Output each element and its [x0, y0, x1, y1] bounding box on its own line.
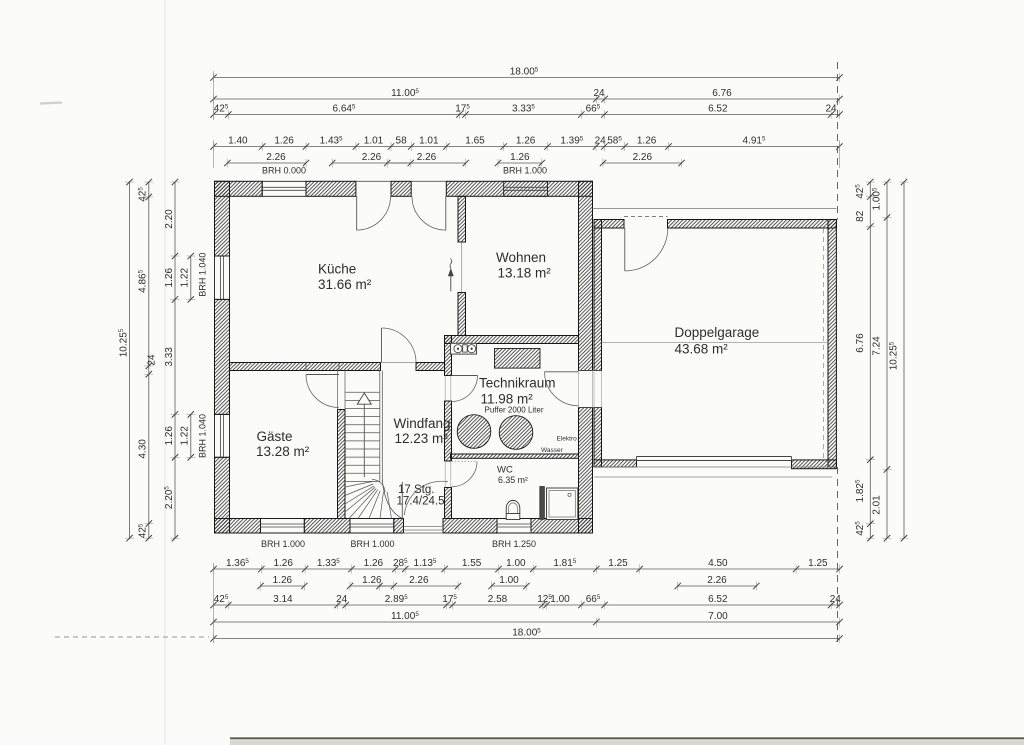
svg-text:Elektro: Elektro — [557, 436, 578, 443]
svg-text:13.28 m²: 13.28 m² — [256, 444, 310, 459]
svg-text:82: 82 — [855, 210, 866, 222]
svg-text:2.26: 2.26 — [707, 575, 727, 586]
svg-text:17.4/24.5: 17.4/24.5 — [397, 496, 445, 508]
svg-text:18.005: 18.005 — [512, 627, 541, 638]
svg-text:1.00: 1.00 — [550, 594, 570, 605]
svg-text:Doppelgarage: Doppelgarage — [675, 325, 760, 340]
svg-text:BRH 1.000: BRH 1.000 — [261, 539, 305, 549]
svg-text:1.26: 1.26 — [273, 575, 293, 586]
svg-text:BRH 1.000: BRH 1.000 — [350, 539, 394, 549]
svg-text:58: 58 — [396, 136, 408, 147]
svg-text:1.26: 1.26 — [364, 558, 384, 569]
svg-text:Gäste: Gäste — [257, 429, 293, 444]
svg-text:Wasser: Wasser — [541, 447, 564, 454]
svg-text:11.005: 11.005 — [391, 88, 419, 99]
svg-text:BRH 1.040: BRH 1.040 — [198, 253, 208, 297]
svg-text:18.005: 18.005 — [510, 66, 539, 77]
svg-text:1.26: 1.26 — [516, 136, 536, 147]
svg-text:11.98 m²: 11.98 m² — [481, 392, 534, 407]
svg-text:1.22: 1.22 — [180, 268, 191, 288]
svg-text:6.52: 6.52 — [708, 594, 728, 605]
svg-text:1.26: 1.26 — [164, 426, 175, 446]
svg-text:Wohnen: Wohnen — [496, 250, 546, 265]
svg-text:1.65: 1.65 — [465, 136, 485, 147]
svg-text:24: 24 — [147, 354, 158, 366]
svg-text:2.26: 2.26 — [362, 152, 382, 163]
svg-text:2.01: 2.01 — [872, 495, 883, 515]
svg-text:4.30: 4.30 — [138, 439, 149, 459]
svg-text:10.255: 10.255 — [118, 328, 129, 357]
svg-text:1.25: 1.25 — [608, 558, 628, 569]
svg-text:1.55: 1.55 — [462, 558, 482, 569]
svg-text:1.00: 1.00 — [506, 558, 526, 569]
svg-text:Puffer 2000 Liter: Puffer 2000 Liter — [485, 406, 544, 415]
svg-text:7.00: 7.00 — [708, 611, 728, 622]
svg-text:6.76: 6.76 — [712, 88, 732, 99]
svg-text:1.25: 1.25 — [808, 558, 828, 569]
svg-text:2.26: 2.26 — [633, 152, 653, 163]
svg-text:BRH 1.000: BRH 1.000 — [503, 166, 547, 176]
svg-text:BRH 0.000: BRH 0.000 — [262, 166, 306, 176]
svg-text:4.50: 4.50 — [708, 558, 728, 569]
svg-text:2.26: 2.26 — [417, 152, 437, 163]
svg-text:1.22: 1.22 — [180, 426, 191, 446]
svg-text:1.26: 1.26 — [362, 575, 382, 586]
svg-text:7.24: 7.24 — [872, 336, 883, 356]
svg-text:1.26: 1.26 — [274, 136, 294, 147]
svg-text:1.00: 1.00 — [499, 575, 519, 586]
svg-text:24: 24 — [595, 136, 607, 147]
svg-text:12.23 m²: 12.23 m² — [395, 431, 449, 446]
svg-text:1.01: 1.01 — [364, 136, 384, 147]
svg-text:3.14: 3.14 — [273, 594, 293, 605]
svg-text:2.20: 2.20 — [164, 209, 175, 229]
svg-text:Windfang: Windfang — [394, 416, 451, 431]
svg-text:1.26: 1.26 — [510, 152, 530, 163]
svg-text:6.52: 6.52 — [708, 104, 728, 115]
svg-text:3.33: 3.33 — [164, 347, 175, 367]
svg-text:2.26: 2.26 — [266, 152, 286, 163]
svg-text:2.58: 2.58 — [488, 594, 508, 605]
svg-text:24: 24 — [336, 594, 348, 605]
svg-text:13.18 m²: 13.18 m² — [498, 266, 552, 281]
svg-text:Technikraum: Technikraum — [479, 376, 556, 391]
svg-text:BRH 1.250: BRH 1.250 — [492, 539, 536, 549]
svg-text:2.26: 2.26 — [409, 575, 429, 586]
svg-text:31.66 m²: 31.66 m² — [318, 277, 372, 292]
svg-text:43.68 m²: 43.68 m² — [675, 342, 729, 357]
svg-text:24: 24 — [825, 104, 837, 115]
svg-text:1.01: 1.01 — [419, 136, 439, 147]
svg-text:6.76: 6.76 — [855, 333, 866, 353]
svg-text:17 Stg.: 17 Stg. — [398, 484, 434, 496]
svg-text:1.26: 1.26 — [164, 268, 175, 288]
svg-text:24: 24 — [830, 594, 842, 605]
svg-text:11.005: 11.005 — [391, 611, 419, 622]
svg-text:1.26: 1.26 — [637, 136, 657, 147]
svg-text:10.255: 10.255 — [888, 341, 899, 370]
svg-text:1.40: 1.40 — [228, 136, 248, 147]
svg-text:24: 24 — [593, 88, 605, 99]
svg-text:BRH 1.040: BRH 1.040 — [198, 414, 208, 458]
svg-text:WC: WC — [497, 465, 513, 476]
svg-text:6.35 m²: 6.35 m² — [498, 475, 528, 485]
svg-text:Küche: Küche — [318, 262, 356, 277]
svg-text:1.26: 1.26 — [273, 558, 293, 569]
